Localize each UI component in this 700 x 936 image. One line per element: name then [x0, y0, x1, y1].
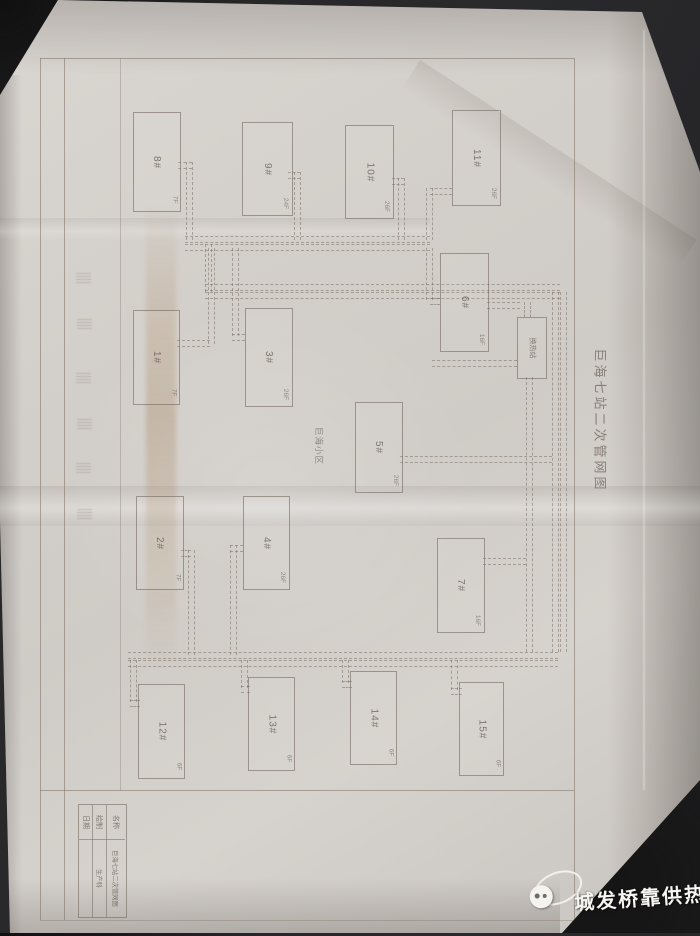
frame-line — [40, 920, 574, 921]
name-value: 巨海七站二次管网图 — [111, 850, 120, 907]
pipe-segment — [128, 652, 558, 659]
floor-note: 26F — [282, 389, 289, 400]
floor-note: 7F — [175, 574, 182, 582]
margin-mark — [77, 418, 92, 429]
pipe-segment — [208, 248, 215, 344]
floor-note: 16F — [478, 334, 485, 345]
building-label: 3# — [264, 351, 275, 364]
drawn-label: 绘制 — [94, 815, 104, 829]
pipe-segment — [552, 292, 559, 652]
pipe-segment — [524, 302, 531, 317]
pipe-segment — [432, 360, 517, 367]
heat-station-label: 换热站 — [527, 338, 537, 359]
floor-note: 6F — [388, 749, 395, 757]
floor-note: 24F — [282, 198, 289, 209]
title-block-col-drawn: 绘制 生产科 — [92, 805, 107, 917]
watermark-text: 城发桥靠供热 — [573, 878, 700, 916]
date-label: 日期 — [81, 815, 91, 829]
title-block: 日期 绘制 生产科 名称 巨海七站二次管网图 — [78, 804, 127, 918]
paper-sheet: 8# 7F 9# 24F 10# 26F 11# 26F 6# 16F 1# 7… — [0, 0, 700, 933]
name-label: 名称 — [111, 815, 121, 829]
pipe-segment — [205, 284, 560, 291]
building-label: 9# — [262, 162, 273, 175]
building-6: 6# 16F — [440, 253, 489, 352]
building-3: 3# 26F — [245, 308, 293, 407]
building-10: 10# 26F — [345, 125, 394, 219]
building-11: 11# 26F — [452, 110, 501, 206]
building-4: 4# 26F — [243, 496, 290, 590]
floor-note: 7F — [172, 196, 179, 204]
pipe-segment — [188, 550, 195, 655]
margin-mark — [77, 318, 92, 329]
pipe-segment — [232, 334, 245, 341]
building-label: 4# — [261, 536, 272, 549]
building-13: 13# 6F — [248, 677, 295, 771]
title-block-col-name: 名称 巨海七站二次管网图 — [106, 805, 125, 917]
watermark: 城发桥靠供热 — [526, 860, 700, 936]
margin-mark — [76, 272, 91, 283]
title-block-col-date: 日期 — [79, 805, 93, 917]
floor-note: 26F — [279, 572, 286, 583]
pipe-segment — [186, 162, 193, 240]
building-label: 13# — [266, 714, 277, 734]
building-label: 7# — [456, 579, 467, 592]
building-label: 14# — [368, 708, 379, 728]
frame-line — [120, 58, 121, 790]
building-label: 1# — [151, 351, 162, 364]
building-15: 15# 6F — [459, 682, 504, 776]
floor-note: 6F — [176, 763, 183, 771]
pipe-segment — [230, 545, 243, 552]
floor-note: 26F — [392, 475, 399, 486]
fold-highlight — [643, 30, 645, 790]
pipe-segment — [426, 188, 433, 240]
floor-note: 7F — [171, 389, 178, 397]
frame-line — [40, 790, 574, 791]
building-2: 2# 7F — [136, 496, 184, 590]
building-label: 2# — [155, 536, 166, 549]
margin-mark — [76, 462, 91, 473]
crease — [608, 0, 700, 933]
area-label: 巨海小区 — [306, 418, 332, 473]
building-label: 10# — [364, 162, 375, 182]
pipe-segment — [398, 178, 405, 240]
pipe-segment — [241, 660, 248, 688]
pipe-segment — [487, 302, 520, 309]
pipe-segment — [426, 248, 433, 300]
building-label: 8# — [152, 155, 163, 168]
building-9: 9# 24F — [242, 122, 293, 216]
pipe-segment — [483, 558, 526, 565]
frame-line — [40, 58, 574, 59]
crease — [0, 0, 700, 75]
heat-station-box: 换热站 — [517, 317, 547, 379]
pipe-segment — [526, 377, 533, 652]
floor-note: 6F — [286, 755, 293, 763]
pipe-segment — [560, 292, 567, 652]
building-8: 8# 7F — [133, 112, 181, 212]
pipe-segment — [177, 340, 210, 347]
pipe-segment — [430, 298, 440, 305]
pipe-segment — [185, 236, 430, 243]
frame-line — [574, 58, 575, 920]
building-label: 12# — [156, 722, 167, 742]
crease — [393, 60, 697, 282]
margin-mark — [77, 508, 92, 519]
pipe-segment — [342, 660, 349, 683]
building-5: 5# 26F — [355, 402, 403, 493]
building-1: 1# 7F — [133, 310, 180, 405]
crease — [0, 75, 22, 933]
floor-note: 6F — [495, 760, 502, 768]
building-12: 12# 6F — [138, 684, 185, 779]
building-7: 7# 16F — [437, 538, 485, 633]
pipe-segment — [430, 188, 452, 195]
building-label: 11# — [471, 149, 482, 168]
pipe-segment — [230, 545, 237, 655]
building-14: 14# 6F — [350, 671, 397, 765]
pipe-segment — [232, 248, 239, 336]
margin-mark — [76, 372, 91, 383]
pipe-segment — [294, 172, 301, 240]
building-label: 6# — [459, 296, 470, 309]
floor-note: 26F — [383, 201, 390, 212]
pipe-segment — [205, 292, 560, 299]
sheet-title: 巨海七站二次管网图 — [583, 328, 619, 513]
building-label: 15# — [476, 719, 487, 739]
floor-note: 16F — [474, 615, 481, 626]
floor-note: 26F — [490, 188, 497, 199]
stain — [146, 205, 176, 670]
drawn-value: 生产科 — [95, 869, 104, 888]
pipe-segment — [130, 660, 137, 702]
pipe-segment — [451, 660, 458, 690]
pipe-segment — [185, 244, 430, 251]
building-label: 5# — [374, 441, 385, 454]
